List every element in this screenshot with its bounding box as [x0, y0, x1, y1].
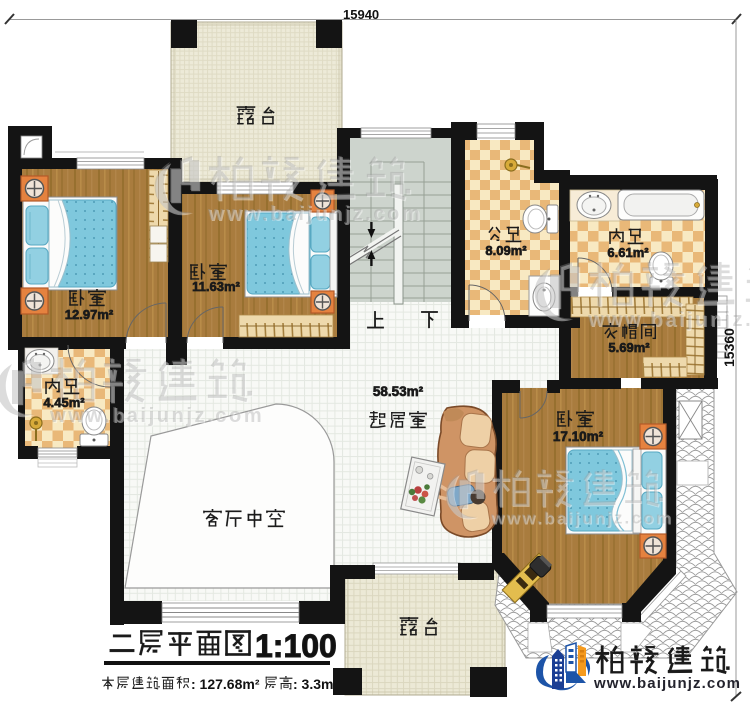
svg-text:4.45m²: 4.45m² [43, 395, 85, 410]
svg-text:17.10m²: 17.10m² [553, 429, 604, 444]
svg-text:6.61m²: 6.61m² [607, 245, 649, 260]
svg-text:15360: 15360 [721, 328, 737, 367]
svg-text:8.09m²: 8.09m² [485, 243, 527, 258]
svg-text:11.63m²: 11.63m² [192, 279, 240, 294]
svg-text:1:100: 1:100 [255, 628, 337, 664]
svg-text:5.69m²: 5.69m² [608, 340, 650, 355]
svg-text:15940: 15940 [343, 7, 379, 22]
svg-text:12.97m²: 12.97m² [65, 307, 114, 322]
svg-text:58.53m²: 58.53m² [373, 384, 424, 399]
svg-text:www.baijunjz.com: www.baijunjz.com [593, 675, 741, 692]
svg-text:: 3.3m: : 3.3m [293, 676, 333, 692]
svg-text:: 127.68m²: : 127.68m² [191, 676, 260, 692]
